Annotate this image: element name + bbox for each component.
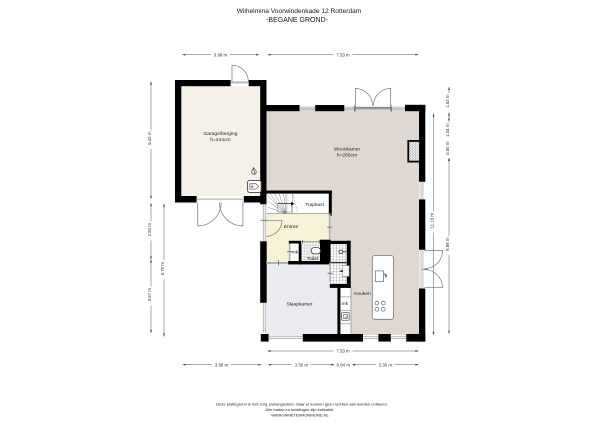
svg-text:Keuken: Keuken [354,291,371,297]
svg-text:7.53 m: 7.53 m [336,349,350,354]
svg-text:mk: mk [292,250,299,256]
svg-text:h=265cm: h=265cm [337,153,357,159]
svg-text:Trapkast: Trapkast [305,202,324,208]
svg-text:0.60 m: 0.60 m [445,141,450,155]
svg-text:3.36 m: 3.36 m [295,362,309,367]
svg-text:-BEGANE GROND-: -BEGANE GROND- [266,17,329,24]
svg-text:7.53 m: 7.53 m [336,52,350,57]
svg-text:Alle maten en indelingen zijn: Alle maten en indelingen zijn indicatief… [266,407,335,412]
svg-text:3.36 m: 3.36 m [379,362,393,367]
svg-text:0.84 m: 0.84 m [337,362,351,367]
svg-text:6.70 m: 6.70 m [160,262,165,276]
svg-text:5.42 m: 5.42 m [147,131,152,145]
svg-text:mk: mk [342,301,349,307]
svg-text:1.44 m: 1.44 m [445,123,450,137]
svg-text:WWW.INMETENRIJNMOND.NL: WWW.INMETENRIJNMOND.NL [271,413,329,418]
svg-text:3.57 m: 3.57 m [147,288,152,302]
svg-text:h=244cm: h=244cm [210,137,230,143]
svg-text:Garage/berging: Garage/berging [204,131,238,137]
svg-text:11.16 m: 11.16 m [429,213,434,229]
svg-text:Toilet: Toilet [307,256,319,262]
svg-text:Deze plattegrond is met zorg s: Deze plattegrond is met zorg samengestel… [216,402,387,407]
svg-text:Slaapkamer: Slaapkamer [286,302,312,308]
svg-text:1.52 m: 1.52 m [445,94,450,108]
svg-text:3.98 m: 3.98 m [214,52,228,57]
svg-text:3.98 m: 3.98 m [215,362,229,367]
svg-text:8.88 m: 8.88 m [445,237,450,251]
svg-text:Entree: Entree [284,224,299,230]
svg-text:Woonkamer: Woonkamer [334,147,361,153]
svg-text:Wilhelmina Voorwindenkade 12 R: Wilhelmina Voorwindenkade 12 Rotterdam [237,8,362,15]
svg-text:2.83 m: 2.83 m [147,223,152,237]
